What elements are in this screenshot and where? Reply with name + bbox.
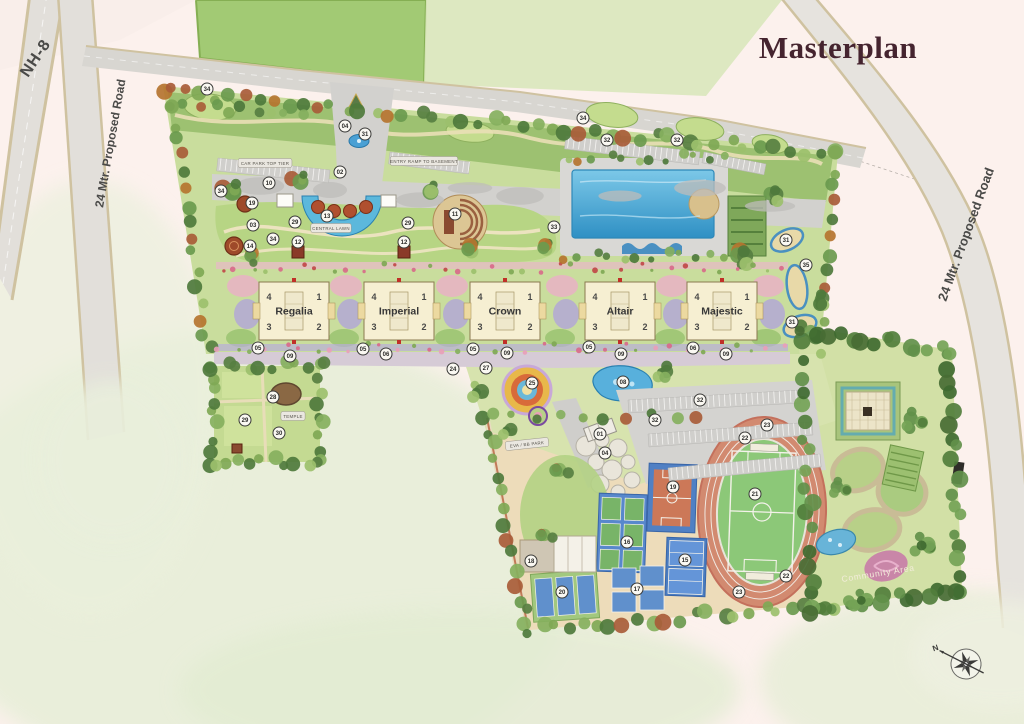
tower-name: Imperial <box>379 306 419 318</box>
map-marker: 09 <box>284 350 296 362</box>
tower-unit-number: 4 <box>266 292 271 302</box>
marker-number: 05 <box>360 347 367 353</box>
tag-label: CAR PARK TOP TIER <box>241 161 289 166</box>
marker-number: 27 <box>483 366 490 372</box>
marker-number: 23 <box>736 590 743 596</box>
map-marker: 31 <box>780 234 792 246</box>
map-marker: 28 <box>267 391 279 403</box>
map-marker: 09 <box>615 348 627 360</box>
map-marker: 02 <box>334 166 346 178</box>
tower-block-crown: 4132Crown <box>464 278 546 344</box>
marker-number: 09 <box>287 354 294 360</box>
map-marker: 34 <box>201 83 213 95</box>
map-marker: 15 <box>679 554 691 566</box>
map-marker: 31 <box>359 128 371 140</box>
map-marker: 34 <box>267 233 279 245</box>
map-marker: 12 <box>398 236 410 248</box>
tennis-courts <box>665 537 707 596</box>
tag-label: CENTRAL LAWN <box>312 226 350 231</box>
marker-number: 13 <box>324 214 331 220</box>
tower-unit-number: 2 <box>642 322 647 332</box>
tower-unit-number: 4 <box>592 292 597 302</box>
tower-unit-number: 3 <box>266 322 271 332</box>
tower-unit-number: 3 <box>477 322 482 332</box>
marker-number: 06 <box>383 352 390 358</box>
tower-unit-number: 1 <box>642 292 647 302</box>
marker-number: 32 <box>674 138 681 144</box>
tower-unit-number: 1 <box>421 292 426 302</box>
map-marker: 05 <box>252 342 264 354</box>
marker-number: 01 <box>597 432 604 438</box>
marker-number: 09 <box>618 352 625 358</box>
map-marker: 27 <box>480 362 492 374</box>
map-marker: 33 <box>548 221 560 233</box>
pickleball-courts <box>597 493 648 573</box>
tower-unit-number: 4 <box>371 292 376 302</box>
map-marker: 23 <box>761 419 773 431</box>
map-tag-entry-ramp: ENTRY RAMP TO BASEMENT <box>390 157 458 166</box>
garden-pavilion <box>232 444 242 453</box>
map-marker: 22 <box>780 570 792 582</box>
tower-unit-number: 3 <box>371 322 376 332</box>
marker-number: 35 <box>803 263 810 269</box>
marker-number: 31 <box>362 132 369 138</box>
map-tag-temple: TEMPLE <box>281 412 305 421</box>
map-marker: 04 <box>599 447 611 459</box>
map-marker: 29 <box>239 414 251 426</box>
tower-block-imperial: 4132Imperial <box>358 278 440 344</box>
marker-number: 29 <box>242 418 249 424</box>
tag-label: TEMPLE <box>283 414 302 419</box>
map-marker: 25 <box>526 377 538 389</box>
marker-number: 11 <box>452 212 459 218</box>
map-marker: 32 <box>601 134 613 146</box>
map-marker: 34 <box>577 112 589 124</box>
tower-block-regalia: 4132Regalia <box>253 278 335 344</box>
marker-number: 28 <box>270 395 277 401</box>
masterplan-svg: NH-8 24 Mtr. Proposed Road 24 Mtr. Propo… <box>0 0 1024 724</box>
marker-number: 32 <box>604 138 611 144</box>
map-marker: 05 <box>467 343 479 355</box>
temple-shrine <box>863 407 872 416</box>
map-marker: 17 <box>631 583 643 595</box>
map-marker: 32 <box>649 414 661 426</box>
map-marker: 12 <box>292 236 304 248</box>
tower-unit-number: 2 <box>316 322 321 332</box>
map-marker: 14 <box>244 240 256 252</box>
circular-court <box>225 237 243 255</box>
marker-number: 14 <box>247 244 254 250</box>
marker-number: 22 <box>783 574 790 580</box>
marker-number: 05 <box>255 346 262 352</box>
map-marker: 16 <box>621 536 633 548</box>
marker-number: 25 <box>529 381 536 387</box>
planter <box>344 205 357 218</box>
marker-number: 10 <box>266 181 273 187</box>
map-marker: 13 <box>321 210 333 222</box>
map-marker: 18 <box>525 555 537 567</box>
towers-layer: 4132Regalia4132Imperial4132Crown4132Alta… <box>253 278 763 344</box>
marker-number: 23 <box>764 423 771 429</box>
marker-number: 04 <box>342 124 349 130</box>
marker-number: 34 <box>580 116 587 122</box>
map-marker: 09 <box>501 347 513 359</box>
tower-name: Crown <box>489 306 522 318</box>
gazebo <box>381 195 396 207</box>
marker-number: 09 <box>504 351 511 357</box>
marker-number: 32 <box>697 398 704 404</box>
masterplan-canvas: NH-8 24 Mtr. Proposed Road 24 Mtr. Propo… <box>0 0 1024 724</box>
tower-unit-number: 2 <box>421 322 426 332</box>
map-marker: 30 <box>273 427 285 439</box>
tower-unit-number: 4 <box>477 292 482 302</box>
map-marker: 09 <box>720 348 732 360</box>
map-marker: 19 <box>667 481 679 493</box>
map-marker: 32 <box>671 134 683 146</box>
marker-number: 34 <box>218 189 225 195</box>
marker-number: 05 <box>586 345 593 351</box>
page-title: Masterplan <box>759 30 917 65</box>
tower-unit-number: 2 <box>527 322 532 332</box>
map-marker: 04 <box>339 120 351 132</box>
tower-unit-number: 1 <box>316 292 321 302</box>
marker-number: 19 <box>249 201 256 207</box>
map-marker: 20 <box>556 586 568 598</box>
marker-number: 04 <box>602 451 609 457</box>
temple-plaza <box>836 382 900 440</box>
map-tag-car-park: CAR PARK TOP TIER <box>238 159 292 168</box>
map-marker: 11 <box>449 208 461 220</box>
marker-number: 34 <box>204 87 211 93</box>
tower-unit-number: 3 <box>592 322 597 332</box>
marker-number: 18 <box>528 559 535 565</box>
marker-number: 29 <box>292 220 299 226</box>
tower-unit-number: 1 <box>527 292 532 302</box>
map-marker: 08 <box>617 376 629 388</box>
tower-name: Regalia <box>275 306 313 318</box>
marker-number: 29 <box>405 221 412 227</box>
marker-number: 33 <box>551 225 558 231</box>
map-marker: 05 <box>357 343 369 355</box>
marker-number: 22 <box>742 436 749 442</box>
marker-number: 19 <box>670 485 677 491</box>
map-tag-central-lawn: CENTRAL LAWN <box>311 224 351 233</box>
marker-number: 06 <box>690 346 697 352</box>
map-marker: 31 <box>786 316 798 328</box>
marker-number: 12 <box>401 240 408 246</box>
map-marker: 03 <box>247 219 259 231</box>
map-marker: 05 <box>583 341 595 353</box>
tower-name: Altair <box>607 306 634 318</box>
tower-unit-number: 3 <box>694 322 699 332</box>
map-marker: 22 <box>739 432 751 444</box>
map-marker: 06 <box>380 348 392 360</box>
marker-number: 30 <box>276 431 283 437</box>
marker-number: 05 <box>470 347 477 353</box>
tower-block-majestic: 4132Majestic <box>681 278 763 344</box>
tag-label: ENTRY RAMP TO BASEMENT <box>390 159 458 164</box>
marker-number: 17 <box>634 587 641 593</box>
tower-unit-number: 2 <box>744 322 749 332</box>
map-marker: 34 <box>215 185 227 197</box>
map-marker: 29 <box>402 217 414 229</box>
marker-number: 24 <box>450 367 457 373</box>
marker-number: 16 <box>624 540 631 546</box>
map-marker: 23 <box>733 586 745 598</box>
map-marker: 35 <box>800 259 812 271</box>
map-marker: 24 <box>447 363 459 375</box>
marker-number: 08 <box>620 380 627 386</box>
map-marker: 10 <box>263 177 275 189</box>
map-marker: 01 <box>594 428 606 440</box>
marker-number: 21 <box>752 492 759 498</box>
tower-unit-number: 4 <box>694 292 699 302</box>
marker-number: 31 <box>789 320 796 326</box>
map-marker: 19 <box>246 197 258 209</box>
marker-number: 20 <box>559 590 566 596</box>
marker-number: 09 <box>723 352 730 358</box>
map-marker: 21 <box>749 488 761 500</box>
gazebo <box>277 194 293 207</box>
planter <box>360 201 373 214</box>
marker-number: 15 <box>682 558 689 564</box>
marker-number: 34 <box>270 237 277 243</box>
tower-name: Majestic <box>701 306 743 318</box>
marker-number: 02 <box>337 170 344 176</box>
tower-block-altair: 4132Altair <box>579 278 661 344</box>
map-marker: 29 <box>289 216 301 228</box>
marker-number: 12 <box>295 240 302 246</box>
map-marker: 06 <box>687 342 699 354</box>
tower-unit-number: 1 <box>744 292 749 302</box>
marker-number: 31 <box>783 238 790 244</box>
marker-number: 03 <box>250 223 257 229</box>
map-marker: 32 <box>694 394 706 406</box>
marker-number: 32 <box>652 418 659 424</box>
